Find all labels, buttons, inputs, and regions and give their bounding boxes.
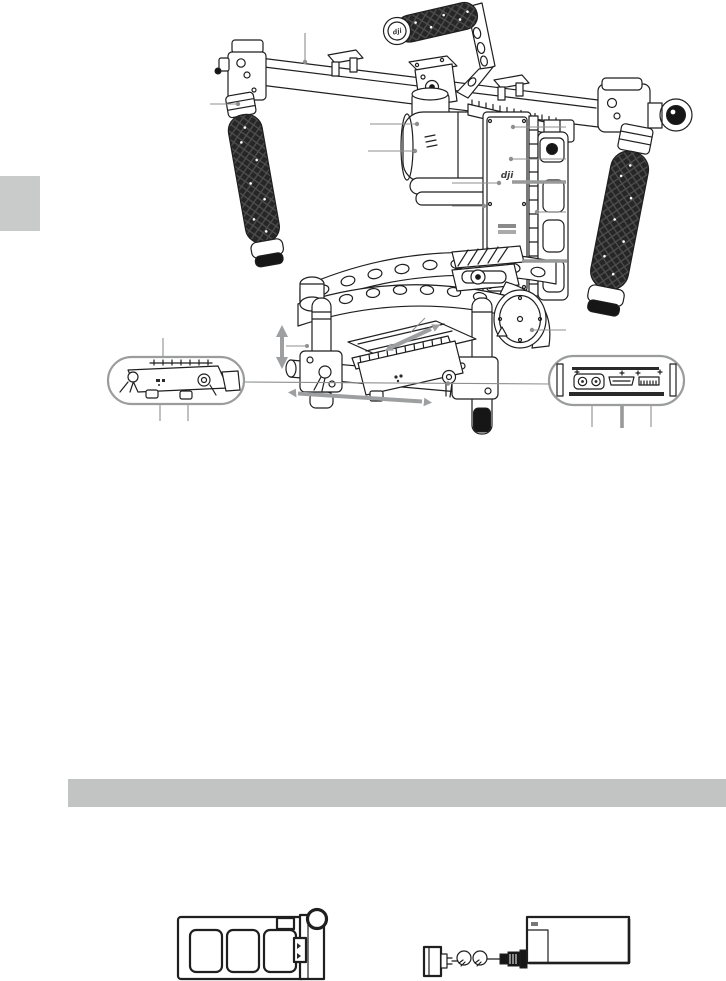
vertical-double-arrow <box>276 325 288 369</box>
cable-coil <box>452 951 500 966</box>
battery-ring-pull <box>308 910 327 929</box>
manual-page: dji <box>0 0 726 981</box>
battery-figure <box>178 910 327 980</box>
dji-logo-text-column: dji <box>501 171 515 181</box>
hdmi-port <box>609 377 634 385</box>
power-ports <box>574 374 604 389</box>
camera-plate-detail-bubble <box>108 357 244 404</box>
left-bar-joint <box>215 40 266 100</box>
power-adapter-figure <box>424 917 629 976</box>
adapter-brick <box>527 917 629 963</box>
plug <box>424 947 441 976</box>
pin-connector-port <box>639 377 659 385</box>
top-handle-grip: dji <box>381 0 480 48</box>
right-bar-joint <box>598 78 692 132</box>
right-handle-grip <box>583 123 657 318</box>
rear-port-panel-bubble <box>549 356 684 405</box>
page-illustrations: dji <box>0 0 726 981</box>
left-handle-grip <box>222 91 286 268</box>
